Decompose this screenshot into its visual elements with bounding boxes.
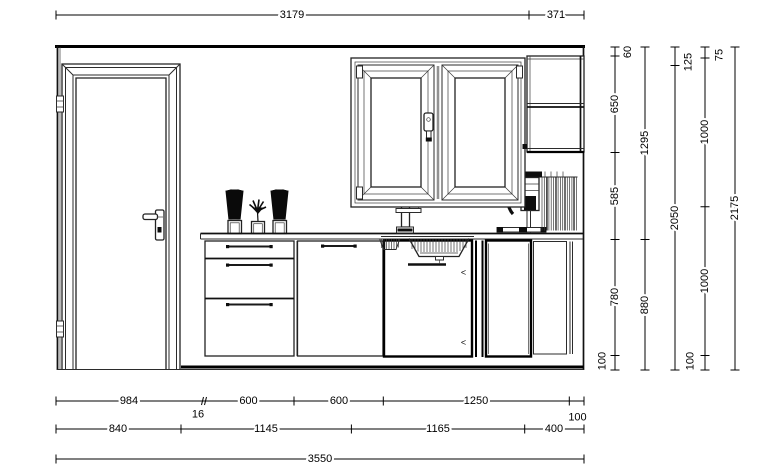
- small-plant-middle: [250, 200, 267, 222]
- window-hinge-top-right: [517, 66, 523, 78]
- dim-label: 600: [239, 395, 257, 407]
- dim-label: 371: [547, 9, 565, 21]
- dim-label: 2175: [729, 196, 741, 220]
- radiator-panel: [542, 172, 578, 231]
- door-handle: [143, 210, 164, 240]
- dim-label: 840: [109, 423, 127, 435]
- tall-unit-door: [486, 241, 531, 357]
- window-frame-outer: [351, 58, 525, 207]
- decor-vases: [227, 190, 288, 234]
- base-door-panel: [298, 241, 384, 356]
- door-hinge-bottom: [57, 321, 64, 337]
- dim-label: 75: [714, 49, 726, 61]
- dim-label: 100: [597, 352, 609, 370]
- wall-cabinet: [523, 56, 585, 152]
- dim-label: 585: [609, 187, 621, 205]
- twig-bundle-left: [227, 190, 243, 220]
- window-hinge-bottom-left: [357, 187, 363, 199]
- kitchen-elevation-drawing: < <: [0, 0, 767, 470]
- dim-label: 100: [568, 412, 586, 424]
- dim-label: 1000: [699, 120, 711, 144]
- drawer-base-unit: [205, 241, 294, 356]
- dimension-right-chain5: 2175: [729, 47, 741, 370]
- dim-label: 100: [685, 352, 697, 370]
- dimension-right-chain4: 75 1000 1000 100: [685, 47, 726, 370]
- door-keyhole: [158, 227, 162, 233]
- window: [351, 58, 525, 207]
- wall-cabinet-handle: [523, 144, 528, 149]
- dim-label: 1145: [254, 423, 278, 435]
- dim-label: 16: [192, 409, 204, 421]
- dim-label: 1295: [639, 131, 651, 155]
- dim-label: 400: [545, 423, 563, 435]
- dimension-bottom-row3: 3550: [56, 453, 584, 465]
- door-hinge-top: [57, 96, 64, 112]
- dim-label: 1165: [426, 423, 450, 435]
- door-base-unit: [297, 241, 383, 356]
- door-trim-miters: [62, 64, 180, 75]
- wall-rail: [497, 227, 546, 233]
- dim-label: 1250: [464, 395, 488, 407]
- dim-label: 1000: [699, 269, 711, 293]
- dimension-top-row: 3179 371: [56, 9, 584, 21]
- dishwasher-vent-mark-top: <: [461, 268, 466, 278]
- dimension-right-chain1: 60 650 585 780 100: [597, 46, 635, 370]
- dim-label: 984: [120, 395, 138, 407]
- dim-label: 2050: [669, 206, 681, 230]
- dimension-bottom-row1: 984 16 600 600 1250 100: [56, 395, 587, 424]
- dishwasher-door: [384, 241, 472, 357]
- dim-label: 60: [622, 46, 634, 58]
- dim-label: 600: [330, 395, 348, 407]
- door-leaf: [76, 78, 166, 369]
- twig-bundle-right: [272, 190, 288, 220]
- door: [57, 64, 181, 369]
- dishwasher-vent-mark-bottom: <: [461, 338, 466, 348]
- end-panel: [570, 242, 573, 355]
- dimension-right-chain3: 125 2050: [669, 47, 695, 370]
- open-compartment: [534, 242, 573, 355]
- dim-label: 3550: [308, 453, 332, 465]
- faucet-flange: [396, 209, 421, 213]
- filler-panel: [476, 241, 483, 358]
- dimension-bottom-row2: 840 1145 1165 400: [56, 423, 584, 435]
- dim-label: 125: [683, 53, 695, 71]
- dishwasher: < <: [384, 241, 472, 357]
- dim-label: 3179: [280, 9, 304, 21]
- dimension-right-chain2: 1295 880: [639, 47, 651, 370]
- dim-label: 650: [609, 95, 621, 113]
- dim-label: 780: [609, 288, 621, 306]
- door-trim-inner: [73, 75, 169, 369]
- dim-label: 880: [639, 296, 651, 314]
- window-hinge-top-left: [357, 66, 363, 78]
